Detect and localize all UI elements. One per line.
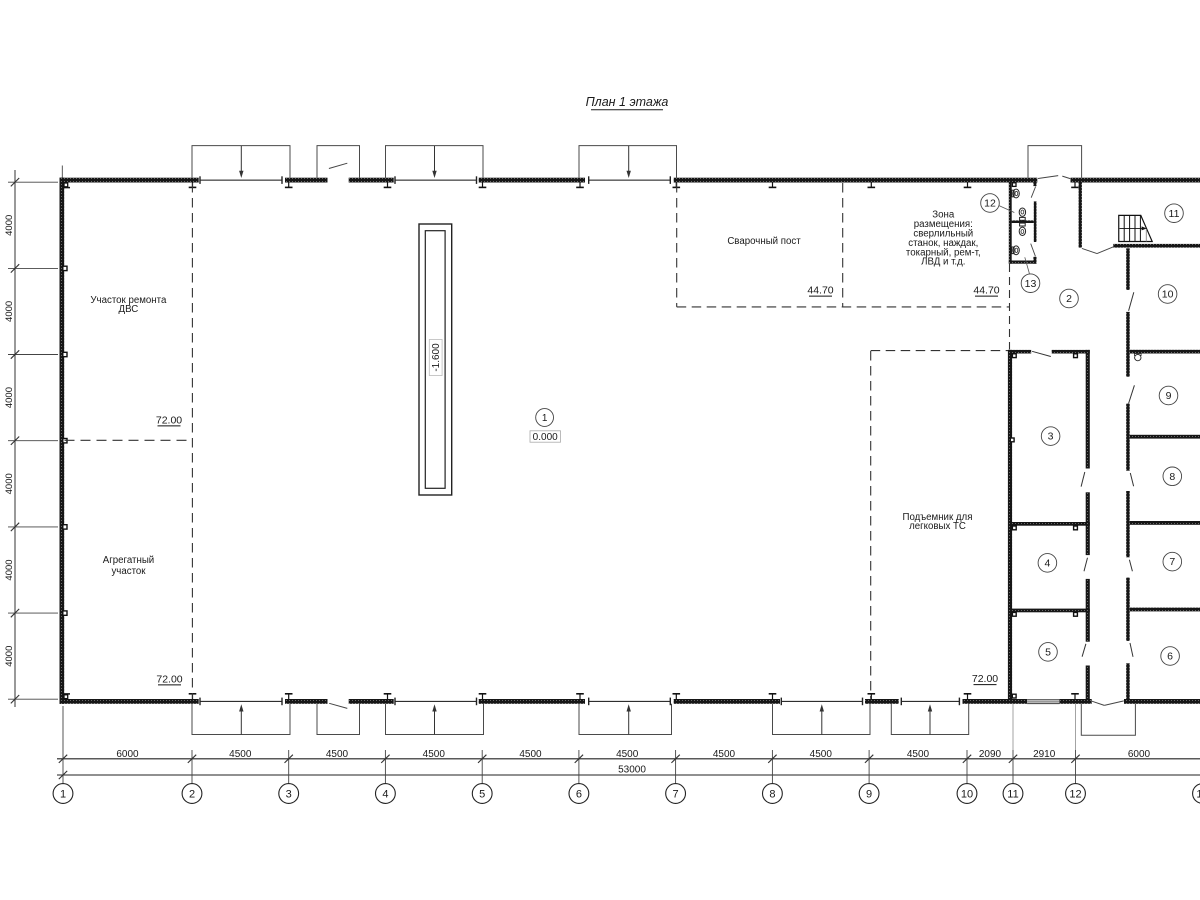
svg-text:4000: 4000 [4, 559, 15, 580]
svg-text:4500: 4500 [326, 749, 349, 760]
svg-text:легковых ТС: легковых ТС [909, 521, 966, 532]
svg-text:2910: 2910 [1033, 749, 1056, 760]
svg-text:участок: участок [111, 566, 146, 577]
svg-text:10: 10 [1162, 289, 1174, 301]
svg-text:4000: 4000 [4, 215, 15, 236]
svg-text:0.000: 0.000 [533, 432, 558, 443]
svg-text:8: 8 [1169, 471, 1175, 483]
svg-text:9: 9 [866, 788, 872, 800]
svg-text:4000: 4000 [4, 301, 15, 322]
svg-text:1: 1 [60, 788, 66, 800]
svg-text:План 1 этажа: План 1 этажа [586, 95, 669, 109]
svg-text:9: 9 [1166, 390, 1172, 402]
svg-text:44.70: 44.70 [807, 285, 833, 297]
svg-text:53000: 53000 [618, 765, 646, 776]
svg-text:4500: 4500 [423, 749, 446, 760]
svg-text:11: 11 [1007, 788, 1018, 800]
svg-text:2: 2 [1066, 293, 1072, 305]
svg-text:12: 12 [984, 198, 996, 210]
svg-text:6000: 6000 [1128, 749, 1151, 760]
svg-text:4500: 4500 [713, 749, 736, 760]
svg-text:Агрегатный: Агрегатный [103, 555, 154, 566]
svg-text:72.00: 72.00 [156, 414, 182, 426]
svg-text:13: 13 [1196, 788, 1200, 800]
svg-text:44.70: 44.70 [973, 285, 999, 297]
svg-text:72.00: 72.00 [972, 673, 998, 685]
svg-text:12: 12 [1069, 788, 1081, 800]
svg-text:4500: 4500 [810, 749, 833, 760]
svg-text:3: 3 [286, 788, 292, 800]
svg-text:-1.600: -1.600 [431, 343, 442, 372]
svg-text:5: 5 [1045, 647, 1051, 659]
svg-text:2: 2 [189, 788, 195, 800]
svg-text:2090: 2090 [979, 749, 1002, 760]
svg-text:13: 13 [1025, 278, 1037, 290]
svg-text:7: 7 [673, 788, 679, 800]
svg-text:ЛВД и т.д.: ЛВД и т.д. [921, 257, 965, 268]
svg-text:1: 1 [542, 413, 548, 424]
svg-text:4500: 4500 [519, 749, 542, 760]
svg-text:4500: 4500 [229, 749, 252, 760]
svg-text:6: 6 [1167, 651, 1173, 663]
svg-text:4500: 4500 [616, 749, 639, 760]
svg-text:6: 6 [576, 788, 582, 800]
svg-text:4000: 4000 [4, 473, 15, 494]
svg-text:11: 11 [1169, 208, 1180, 220]
svg-text:8: 8 [769, 788, 775, 800]
svg-text:5: 5 [479, 788, 485, 800]
svg-text:72.00: 72.00 [156, 673, 182, 685]
svg-text:4: 4 [382, 788, 388, 800]
svg-text:4500: 4500 [907, 749, 930, 760]
svg-text:4000: 4000 [4, 387, 15, 408]
svg-text:3: 3 [1048, 431, 1054, 443]
svg-text:4: 4 [1044, 558, 1050, 570]
svg-text:4000: 4000 [4, 646, 15, 667]
svg-text:6000: 6000 [116, 749, 139, 760]
svg-text:7: 7 [1169, 556, 1175, 568]
svg-text:ДВС: ДВС [119, 304, 139, 315]
svg-text:10: 10 [961, 788, 973, 800]
svg-text:Сварочный пост: Сварочный пост [727, 236, 801, 247]
